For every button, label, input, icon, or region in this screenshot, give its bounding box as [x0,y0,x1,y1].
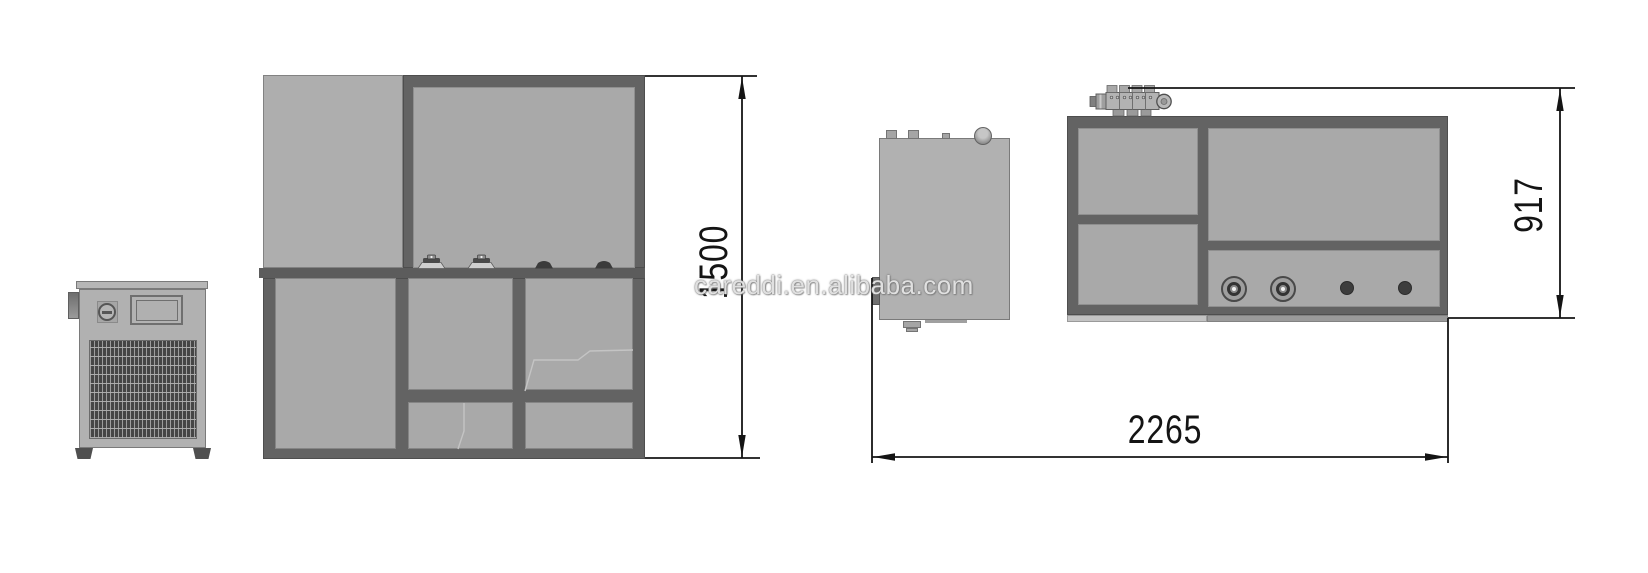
lower-right-lower-door [525,402,633,449]
controller-display-screen [136,300,178,321]
top-view-base-strip-left [1067,315,1207,322]
chiller-foot-right [193,448,211,459]
valve-manifold-icon [1090,86,1171,117]
top-left-hatch-lower [1078,224,1198,305]
lower-left-door [275,278,396,449]
pump-port-3 [942,133,950,139]
chiller-side-handle [68,292,79,319]
lower-right-upper-door [525,278,633,390]
connector-pin [1232,287,1236,291]
pump-bottom-strip [925,320,967,323]
top-left-hatch-upper [1078,128,1198,215]
connector-port-small-2 [1398,281,1412,295]
lower-middle-lower-door [408,402,513,449]
connector-pin [1281,287,1285,291]
pump-bottom-fitting-tip [906,328,918,332]
pump-cap-icon [974,127,992,145]
lower-middle-upper-door [408,278,513,390]
upper-right-back-panel [413,87,635,268]
top-right-hatch-large [1208,128,1440,241]
connector-port-large-2 [1270,276,1296,302]
power-switch-icon [98,303,116,321]
ventilation-grille [89,340,197,439]
dimension-label-2265: 2265 [1128,410,1202,450]
chiller-top-lid [76,281,208,289]
worktop-shelf [259,268,645,278]
top-view-base-strip-right [1207,315,1448,322]
pump-bottom-fitting [903,321,921,328]
upper-left-door [263,75,403,268]
chiller-foot-left [75,448,93,459]
watermark: careddi.en.alibaba.com [694,270,974,301]
connector-port-small-1 [1340,281,1354,295]
switch-slot [102,311,112,314]
pump-port-1 [886,130,897,139]
connector-port-large-1 [1221,276,1247,302]
technical-drawing-canvas: 1500 917 2265 careddi.en.alibaba.com [0,0,1648,573]
dimension-label-917: 917 [1509,177,1549,233]
pump-port-2 [908,130,919,139]
